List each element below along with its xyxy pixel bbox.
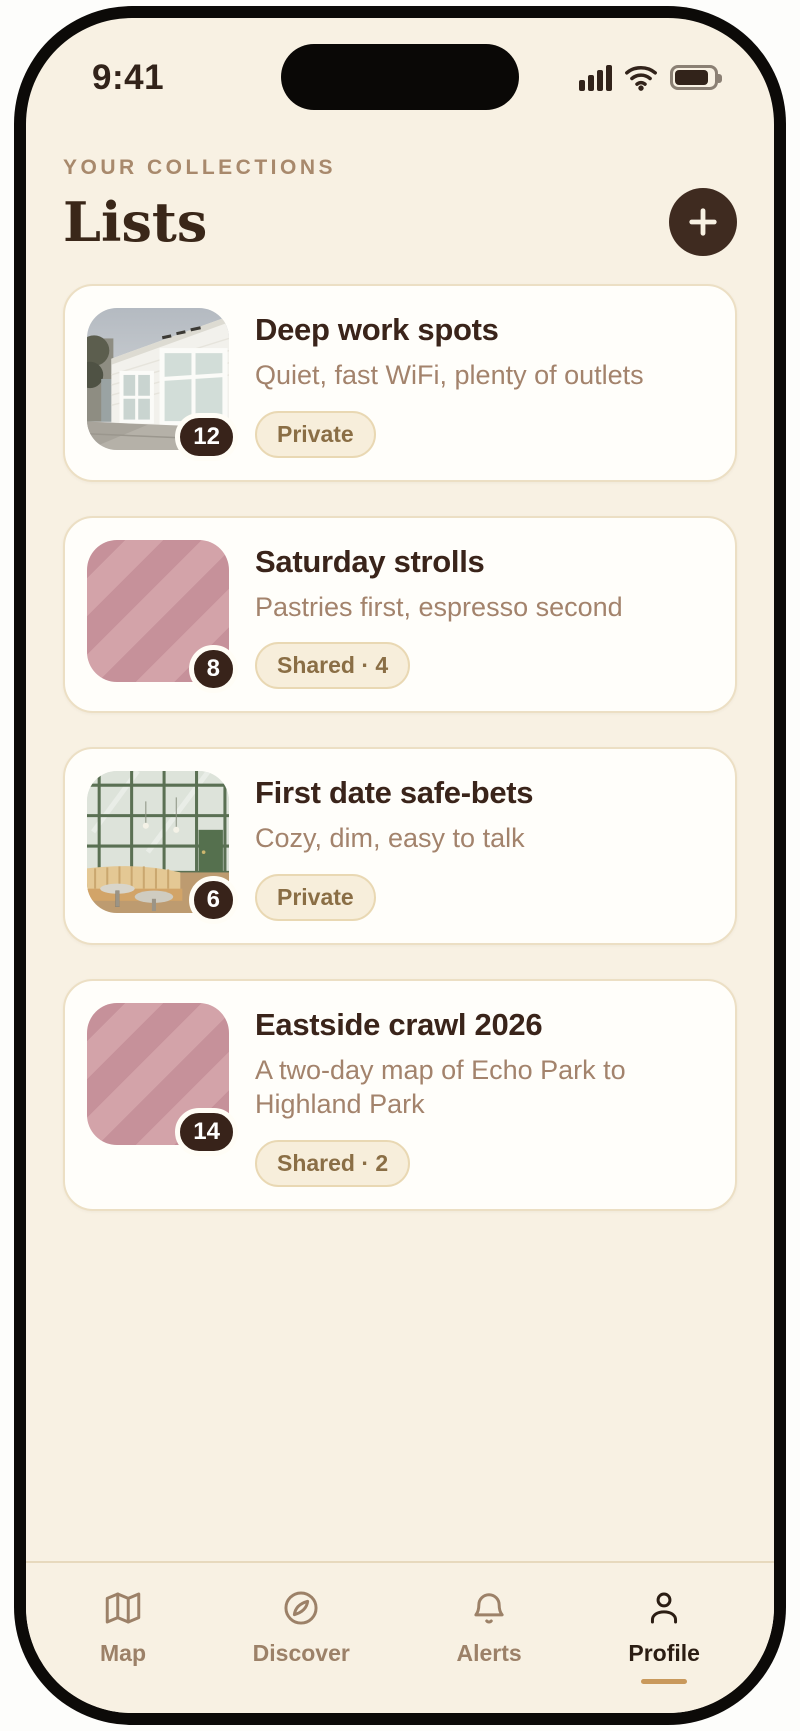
wifi-icon: [624, 64, 658, 91]
list-count-badge: 12: [175, 413, 238, 461]
add-list-button[interactable]: [669, 188, 737, 256]
list-count-badge: 14: [175, 1108, 238, 1156]
map-icon: [102, 1587, 144, 1629]
tab-label: Discover: [253, 1640, 350, 1667]
list-count-badge: 6: [189, 876, 238, 924]
dynamic-island: [281, 44, 519, 110]
bottom-tab-bar: Map Discover: [26, 1561, 774, 1713]
phone-frame: 9:41 YOUR COLLECTIONS: [14, 6, 786, 1725]
tab-profile[interactable]: Profile: [628, 1587, 700, 1713]
tab-label: Profile: [628, 1640, 700, 1667]
collections-eyebrow: YOUR COLLECTIONS: [63, 156, 737, 180]
status-icons: [579, 58, 718, 91]
list-card-saturday-strolls[interactable]: 8 Saturday strolls Pastries first, espre…: [63, 516, 737, 714]
page-title: Lists: [63, 190, 207, 254]
app-screen: 9:41 YOUR COLLECTIONS: [26, 18, 774, 1713]
tab-label: Map: [100, 1640, 146, 1667]
tab-alerts[interactable]: Alerts: [457, 1587, 522, 1713]
list-thumbnail-storefront-photo: 12: [87, 308, 229, 450]
plus-icon: [685, 204, 721, 240]
person-icon: [643, 1587, 685, 1629]
tab-map[interactable]: Map: [100, 1587, 146, 1713]
compass-icon: [280, 1587, 322, 1629]
list-subtitle: Cozy, dim, easy to talk: [255, 821, 695, 856]
visibility-badge: Shared · 2: [255, 1140, 410, 1187]
page-header: YOUR COLLECTIONS Lists: [26, 122, 774, 256]
list-card-eastside-crawl[interactable]: 14 Eastside crawl 2026 A two-day map of …: [63, 979, 737, 1211]
list-title: Saturday strolls: [255, 544, 713, 580]
visibility-badge: Private: [255, 874, 376, 921]
list-title: Deep work spots: [255, 312, 713, 348]
list-title: First date safe-bets: [255, 775, 713, 811]
tab-discover[interactable]: Discover: [253, 1587, 350, 1713]
lists-container: 12 Deep work spots Quiet, fast WiFi, ple…: [26, 256, 774, 1211]
list-title: Eastside crawl 2026: [255, 1007, 713, 1043]
list-card-deep-work-spots[interactable]: 12 Deep work spots Quiet, fast WiFi, ple…: [63, 284, 737, 482]
list-subtitle: A two-day map of Echo Park to Highland P…: [255, 1053, 695, 1122]
signal-icon: [579, 64, 612, 91]
list-subtitle: Quiet, fast WiFi, plenty of outlets: [255, 358, 695, 393]
list-card-first-date-safe-bets[interactable]: 6 First date safe-bets Cozy, dim, easy t…: [63, 747, 737, 945]
list-count-badge: 8: [189, 645, 238, 693]
tab-label: Alerts: [457, 1640, 522, 1667]
list-thumbnail-striped-placeholder: 14: [87, 1003, 229, 1145]
list-thumbnail-striped-placeholder: 8: [87, 540, 229, 682]
bell-icon: [468, 1587, 510, 1629]
list-thumbnail-cafe-photo: 6: [87, 771, 229, 913]
list-subtitle: Pastries first, espresso second: [255, 590, 695, 625]
visibility-badge: Private: [255, 411, 376, 458]
status-time: 9:41: [92, 58, 164, 98]
visibility-badge: Shared · 4: [255, 642, 410, 689]
status-bar: 9:41: [26, 18, 774, 122]
active-tab-underline: [641, 1679, 687, 1684]
battery-icon: [670, 65, 718, 90]
